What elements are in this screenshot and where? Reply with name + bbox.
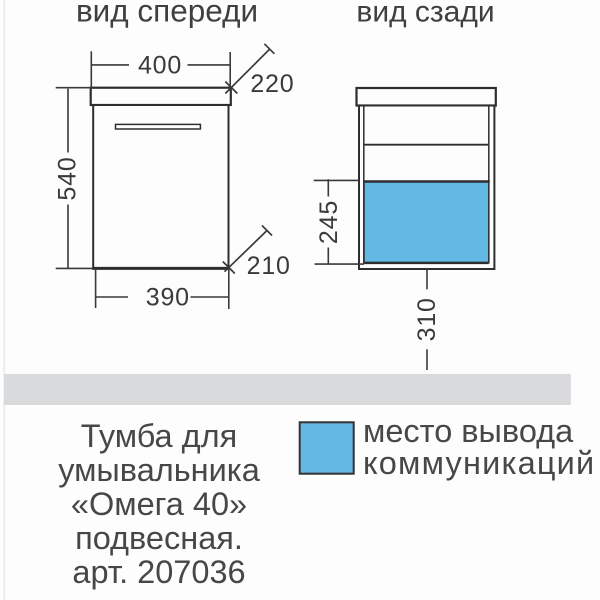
svg-text:310: 310 bbox=[413, 297, 441, 341]
svg-text:540: 540 bbox=[54, 156, 82, 200]
svg-text:245: 245 bbox=[315, 200, 343, 244]
svg-text:вид сзади: вид сзади bbox=[356, 0, 494, 29]
svg-text:390: 390 bbox=[146, 284, 190, 312]
svg-text:210: 210 bbox=[247, 252, 291, 280]
svg-text:400: 400 bbox=[138, 52, 182, 80]
svg-text:вид спереди: вид спереди bbox=[76, 0, 258, 29]
svg-text:220: 220 bbox=[250, 70, 294, 98]
